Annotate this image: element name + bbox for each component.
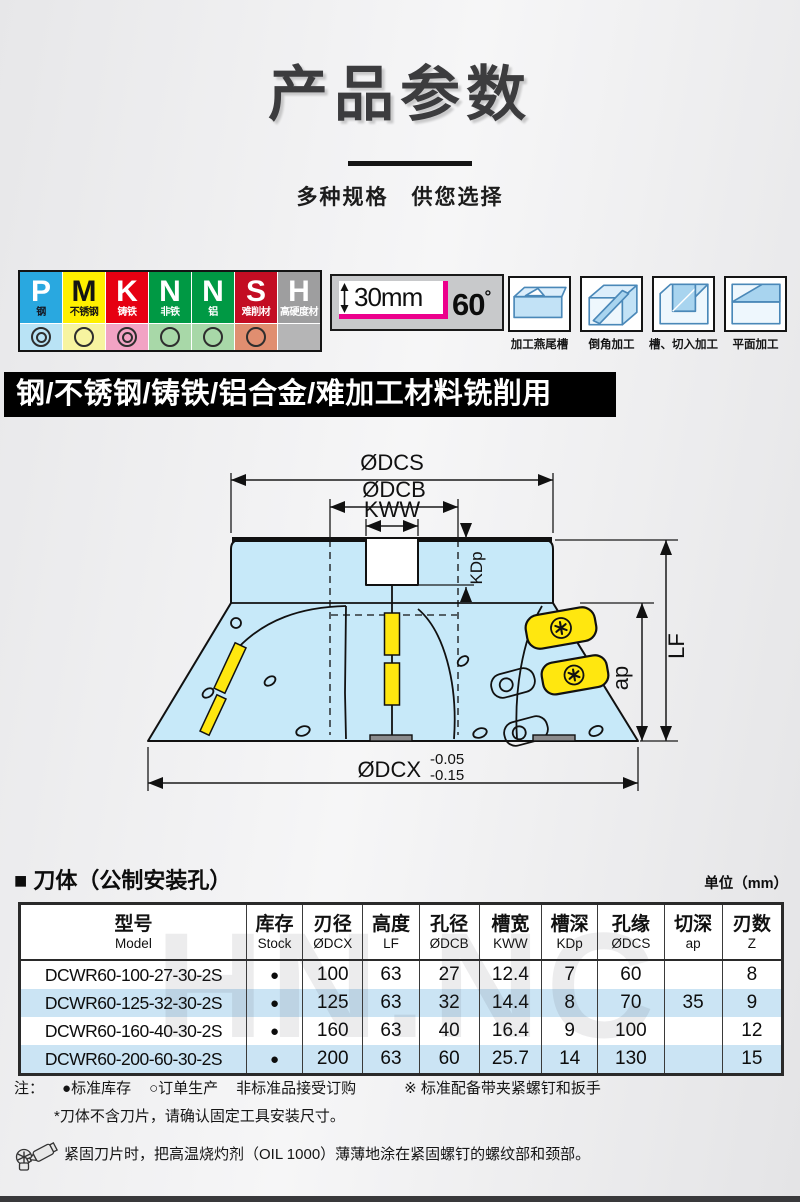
product-spec-page: 产品参数 多种规格 供您选择 P钢M不锈钢K铸铁N非铁N铝S难削材H高硬度材 3… [0,0,800,1202]
vertical-arrow-icon [339,283,350,313]
angle-value: 60° [452,287,490,323]
material-badge-N-铝: N铝 [192,272,234,350]
badge-letter: N [202,277,224,306]
cell-stock: ● [246,960,302,989]
badge-applicability [20,323,62,350]
dim-dcx-tol-top: -0.05 [430,751,464,768]
cell-stock: ● [246,1045,302,1075]
table-row-DCWR60-100-27-30-2S: DCWR60-100-27-30-2S●100632712.47608 [20,960,783,989]
cell-model: DCWR60-160-40-30-2S [20,1017,247,1045]
dim-kdp: KDp [467,551,486,584]
chamfer-icon-box [580,276,643,332]
legend-standard-stock: ●标准库存 [62,1078,131,1100]
cell-z: 8 [722,960,782,989]
cell-stock: ● [246,989,302,1017]
face-milling-icon-box [724,276,787,332]
cell-lf: 63 [363,989,419,1017]
badge-material-name: 钢 [36,306,46,319]
cell-dcs: 70 [598,989,664,1017]
cell-kdp: 7 [542,960,598,989]
spec-table: 型号Model库存Stock刃径ØDCX高度LF孔径ØDCB槽宽KWW槽深KDp… [18,902,784,1076]
cell-lf: 63 [363,1045,419,1075]
height-spec: 30mm [339,281,448,319]
material-badge-P-钢: P钢 [20,272,62,350]
cell-dcs: 100 [598,1017,664,1045]
badge-letter: P [31,277,51,306]
badge-letter: S [246,277,266,306]
machining-label: 加工燕尾槽 [511,336,569,352]
dim-dcx: ØDCX [357,757,421,782]
dovetail-icon-box [508,276,571,332]
cell-dcs: 130 [598,1045,664,1075]
single-circle-mark [74,327,94,347]
badge-material-name: 铝 [208,306,218,319]
cell-kww: 25.7 [479,1045,541,1075]
machining-operations: 加工燕尾槽 倒角加工 [508,276,787,352]
material-badge-N-非铁: N非铁 [149,272,191,350]
cell-z: 12 [722,1017,782,1045]
cell-dcx: 160 [303,1017,363,1045]
table-row-DCWR60-125-32-30-2S: DCWR60-125-32-30-2S●125633214.4870359 [20,989,783,1017]
material-badge-H-高硬度材: H高硬度材 [278,272,320,350]
height-value: 30mm [354,282,422,313]
badge-letter: K [116,277,138,306]
col-header-ap: 切深ap [664,904,722,961]
material-badge-M-不锈钢: M不锈钢 [63,272,105,350]
dim-kww: KWW [364,497,420,522]
col-header-KWW: 槽宽KWW [479,904,541,961]
page-subtitle: 多种规格 供您选择 [0,181,800,211]
material-badges: P钢M不锈钢K铸铁N非铁N铝S难削材H高硬度材 [18,270,322,352]
cell-z: 9 [722,989,782,1017]
spec-box: 30mm 60° [330,274,504,331]
col-header-LF: 高度LF [363,904,419,961]
badge-letter: N [159,277,181,306]
table-section-heading: ■ 刀体（公制安装孔） [14,863,231,895]
machining-label: 平面加工 [733,336,779,352]
cell-kdp: 8 [542,989,598,1017]
chamfer-icon [583,279,641,329]
note-oil-text: 紧固刀片时，把高温烧灼剂（OIL 1000）薄薄地涂在紧固螺钉的螺纹部和颈部。 [64,1144,590,1166]
kww-slot [366,538,418,585]
cell-dcb: 40 [419,1017,479,1045]
machining-face: 平面加工 [724,276,787,352]
cell-dcx: 200 [303,1045,363,1075]
col-header-ØDCX: 刃径ØDCX [303,904,363,961]
cell-stock: ● [246,1017,302,1045]
badge-applicability [63,323,105,350]
cell-dcx: 100 [303,960,363,989]
note-legend-line: 注： ●标准库存 ○订单生产 非标准品接受订购 ※ 标准配备带夹紧螺钉和扳手 [14,1078,792,1100]
cell-ap: 35 [664,989,722,1017]
badge-letter: H [288,277,310,306]
cutter-dimension-diagram: ØDCS ØDCB KWW KDp LF ap ØDCX -0.05 -0.15 [118,443,698,821]
angle-number: 60 [452,287,484,322]
cell-kww: 14.4 [479,989,541,1017]
unit-label: 单位（mm） [704,872,788,893]
face-milling-icon [727,279,785,329]
col-header-ØDCB: 孔径ØDCB [419,904,479,961]
machining-groove: 槽、切入加工 [652,276,715,352]
cell-kdp: 9 [542,1017,598,1045]
cell-model: DCWR60-100-27-30-2S [20,960,247,989]
cell-ap [664,1017,722,1045]
cell-model: DCWR60-200-60-30-2S [20,1045,247,1075]
machining-chamfer: 倒角加工 [580,276,643,352]
page-title: 产品参数 [0,46,800,133]
cell-dcb: 32 [419,989,479,1017]
cell-lf: 63 [363,1017,419,1045]
col-header-KDp: 槽深KDp [542,904,598,961]
note-no-inserts: *刀体不含刀片，请确认固定工具安装尺寸。 [14,1106,792,1128]
col-header-Z: 刃数Z [722,904,782,961]
badge-material-name: 铸铁 [118,306,137,319]
cell-dcs: 60 [598,960,664,989]
cell-kww: 16.4 [479,1017,541,1045]
double-circle-mark [117,327,137,347]
col-header-ØDCS: 孔缘ØDCS [598,904,664,961]
spec-table-header-row: 型号Model库存Stock刃径ØDCX高度LF孔径ØDCB槽宽KWW槽深KDp… [20,904,783,961]
degree-symbol: ° [484,287,490,306]
usage-banner: 钢/不锈钢/铸铁/铝合金/难加工材料铣削用 [4,372,616,417]
table-row-DCWR60-200-60-30-2S: DCWR60-200-60-30-2S●200636025.71413015 [20,1045,783,1075]
note-oil-line: 紧固刀片时，把高温烧灼剂（OIL 1000）薄薄地涂在紧固螺钉的螺纹部和颈部。 [14,1136,792,1174]
legend-made-to-order: ○订单生产 [149,1078,218,1100]
badge-material-name: 非铁 [161,306,180,319]
title-divider [348,161,472,166]
single-circle-mark [203,327,223,347]
double-circle-mark [31,327,51,347]
machining-label: 槽、切入加工 [649,336,718,352]
single-circle-mark [246,327,266,347]
badge-letter: M [72,277,97,306]
material-badge-K-铸铁: K铸铁 [106,272,148,350]
cell-dcx: 125 [303,989,363,1017]
machining-label: 倒角加工 [589,336,635,352]
cell-lf: 63 [363,960,419,989]
badge-applicability [278,323,320,350]
cell-ap [664,1045,722,1075]
col-header-Stock: 库存Stock [246,904,302,961]
badge-applicability [149,323,191,350]
table-row-DCWR60-160-40-30-2S: DCWR60-160-40-30-2S●160634016.4910012 [20,1017,783,1045]
dim-dcs: ØDCS [360,450,424,475]
badge-applicability [235,323,277,350]
groove-icon-box [652,276,715,332]
cell-ap [664,960,722,989]
badge-material-name: 高硬度材 [280,306,318,319]
notes: 注： ●标准库存 ○订单生产 非标准品接受订购 ※ 标准配备带夹紧螺钉和扳手 *… [14,1078,792,1174]
legend-accessory: ※ 标准配备带夹紧螺钉和扳手 [404,1078,601,1100]
note-prefix: 注： [14,1078,44,1100]
cell-dcb: 27 [419,960,479,989]
spec-table-body: DCWR60-100-27-30-2S●100632712.47608DCWR6… [20,960,783,1075]
machining-dovetail: 加工燕尾槽 [508,276,571,352]
cell-kdp: 14 [542,1045,598,1075]
badge-material-name: 不锈钢 [70,306,99,319]
cell-dcb: 60 [419,1045,479,1075]
groove-icon [655,279,713,329]
dim-dcx-tol-bottom: -0.15 [430,767,464,784]
legend-custom-order: 非标准品接受订购 [236,1078,356,1100]
material-badge-S-难削材: S难削材 [235,272,277,350]
badge-applicability [106,323,148,350]
badge-material-name: 难削材 [242,306,271,319]
bottom-section-strip [0,1196,800,1202]
dim-ap: ap [608,666,633,690]
cell-kww: 12.4 [479,960,541,989]
single-circle-mark [160,327,180,347]
cell-z: 15 [722,1045,782,1075]
col-header-Model: 型号Model [20,904,247,961]
dim-lf: LF [664,633,689,659]
cell-model: DCWR60-125-32-30-2S [20,989,247,1017]
oil-tube-icon [14,1136,60,1174]
dovetail-icon [511,279,569,329]
badge-applicability [192,323,234,350]
